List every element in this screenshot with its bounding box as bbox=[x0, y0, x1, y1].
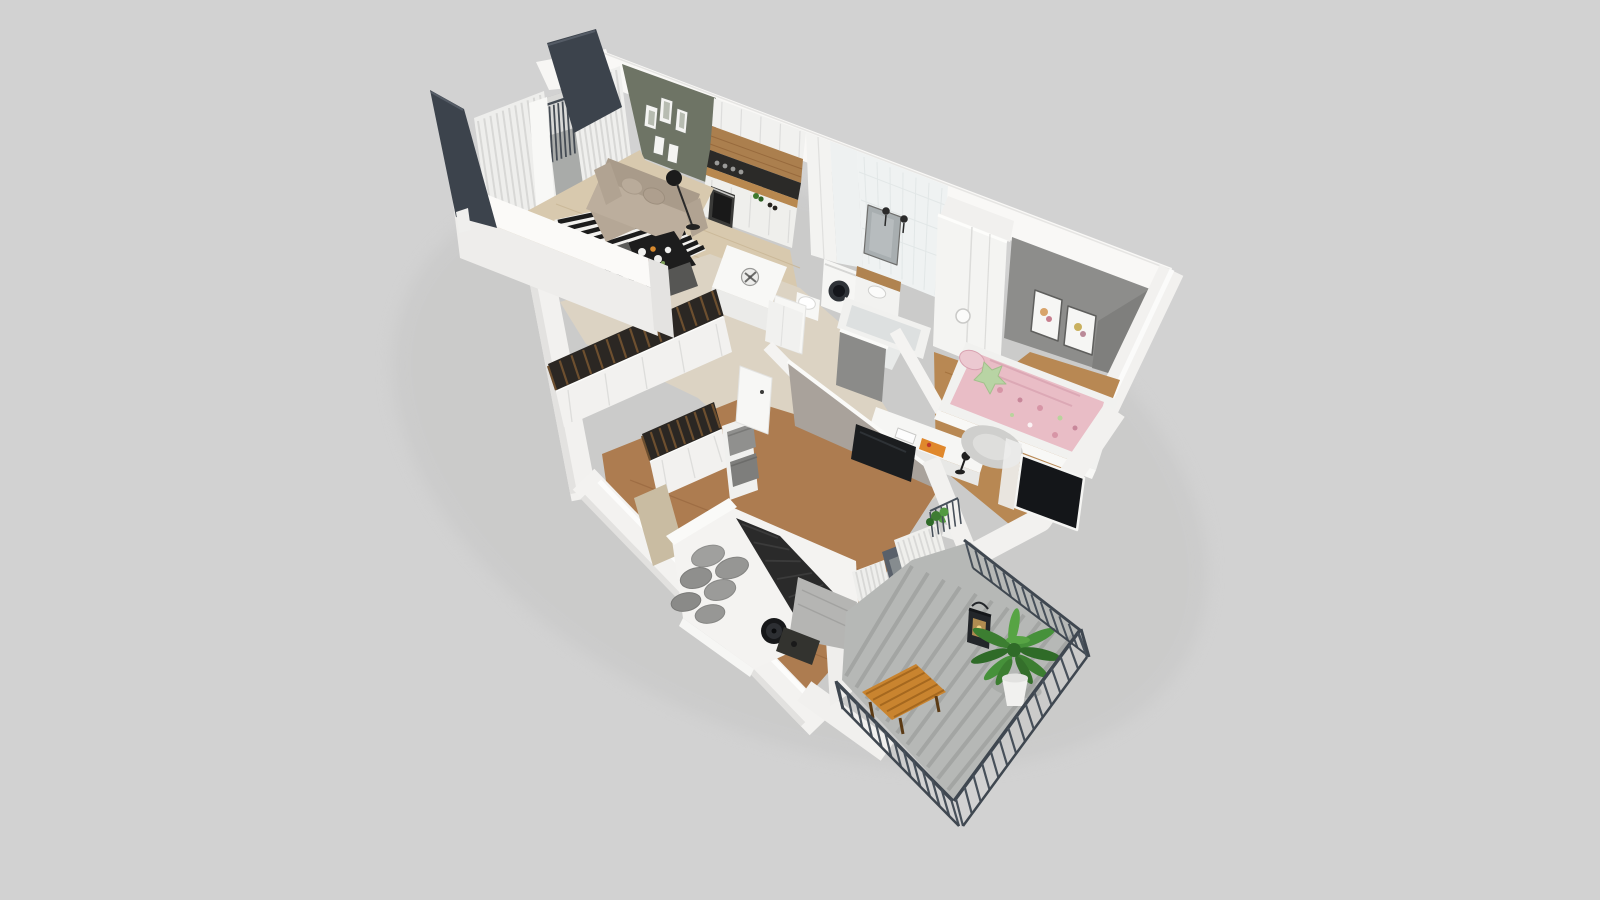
kitchen-bottle bbox=[773, 206, 778, 211]
shower-pipe bbox=[885, 215, 886, 226]
shower-pipe bbox=[903, 223, 904, 233]
floor-lamp-shade bbox=[666, 170, 682, 186]
cooktop-burner bbox=[715, 161, 720, 166]
kids-frame-art bbox=[1046, 316, 1052, 322]
kitchen-bottle bbox=[753, 193, 759, 199]
speaker-dot bbox=[772, 629, 777, 634]
duvet-floral bbox=[1058, 416, 1063, 421]
master-door bbox=[736, 366, 772, 434]
balcony-plant-small bbox=[926, 518, 934, 526]
cooktop-burner bbox=[739, 170, 744, 175]
palm-pot-top bbox=[1002, 674, 1028, 683]
gallery-frame bbox=[667, 143, 679, 164]
gallery-frame-art bbox=[679, 112, 685, 129]
duvet-floral bbox=[1037, 405, 1043, 411]
duvet-floral bbox=[1018, 398, 1023, 403]
kitchen-bottle bbox=[758, 196, 763, 201]
duvet-floral bbox=[1073, 426, 1078, 431]
gallery-frame-art bbox=[663, 101, 670, 120]
palm-frond bbox=[1006, 636, 1030, 644]
desk-lamp-base bbox=[955, 470, 965, 475]
fridge-fan-hub bbox=[748, 275, 751, 278]
bench-item bbox=[791, 641, 797, 647]
kitchen-bottle bbox=[768, 203, 773, 208]
kids-frame bbox=[1031, 290, 1062, 341]
cooktop-burner bbox=[723, 164, 728, 169]
duvet-floral bbox=[1028, 423, 1033, 428]
palm-core bbox=[1007, 643, 1021, 657]
washer-door-glass bbox=[833, 285, 845, 297]
dining-food bbox=[650, 246, 656, 252]
gallery-frame bbox=[653, 135, 665, 156]
kids-frame-art bbox=[1074, 323, 1082, 331]
duvet-floral bbox=[997, 387, 1003, 393]
duvet-floral bbox=[1052, 432, 1058, 438]
dining-plate bbox=[665, 247, 671, 253]
kids-frame-art bbox=[1040, 308, 1048, 316]
desk-toy-dot bbox=[927, 443, 931, 447]
apartment-3d-model bbox=[299, 29, 1300, 887]
floor-lamp-base bbox=[686, 224, 700, 230]
kids-frame-art bbox=[1080, 331, 1086, 337]
cooktop-burner bbox=[731, 167, 736, 172]
render-stage bbox=[0, 0, 1600, 900]
kids-wardrobe-knob bbox=[956, 309, 970, 323]
duvet-floral bbox=[1010, 413, 1014, 417]
gallery-frame-art bbox=[648, 110, 655, 126]
mirror-reflection bbox=[869, 212, 894, 258]
shower-head bbox=[882, 207, 890, 215]
balcony-plant-small bbox=[940, 508, 949, 517]
shower-head bbox=[900, 215, 908, 223]
master-door-handle bbox=[760, 390, 764, 394]
floor-plan-render bbox=[0, 0, 1600, 900]
